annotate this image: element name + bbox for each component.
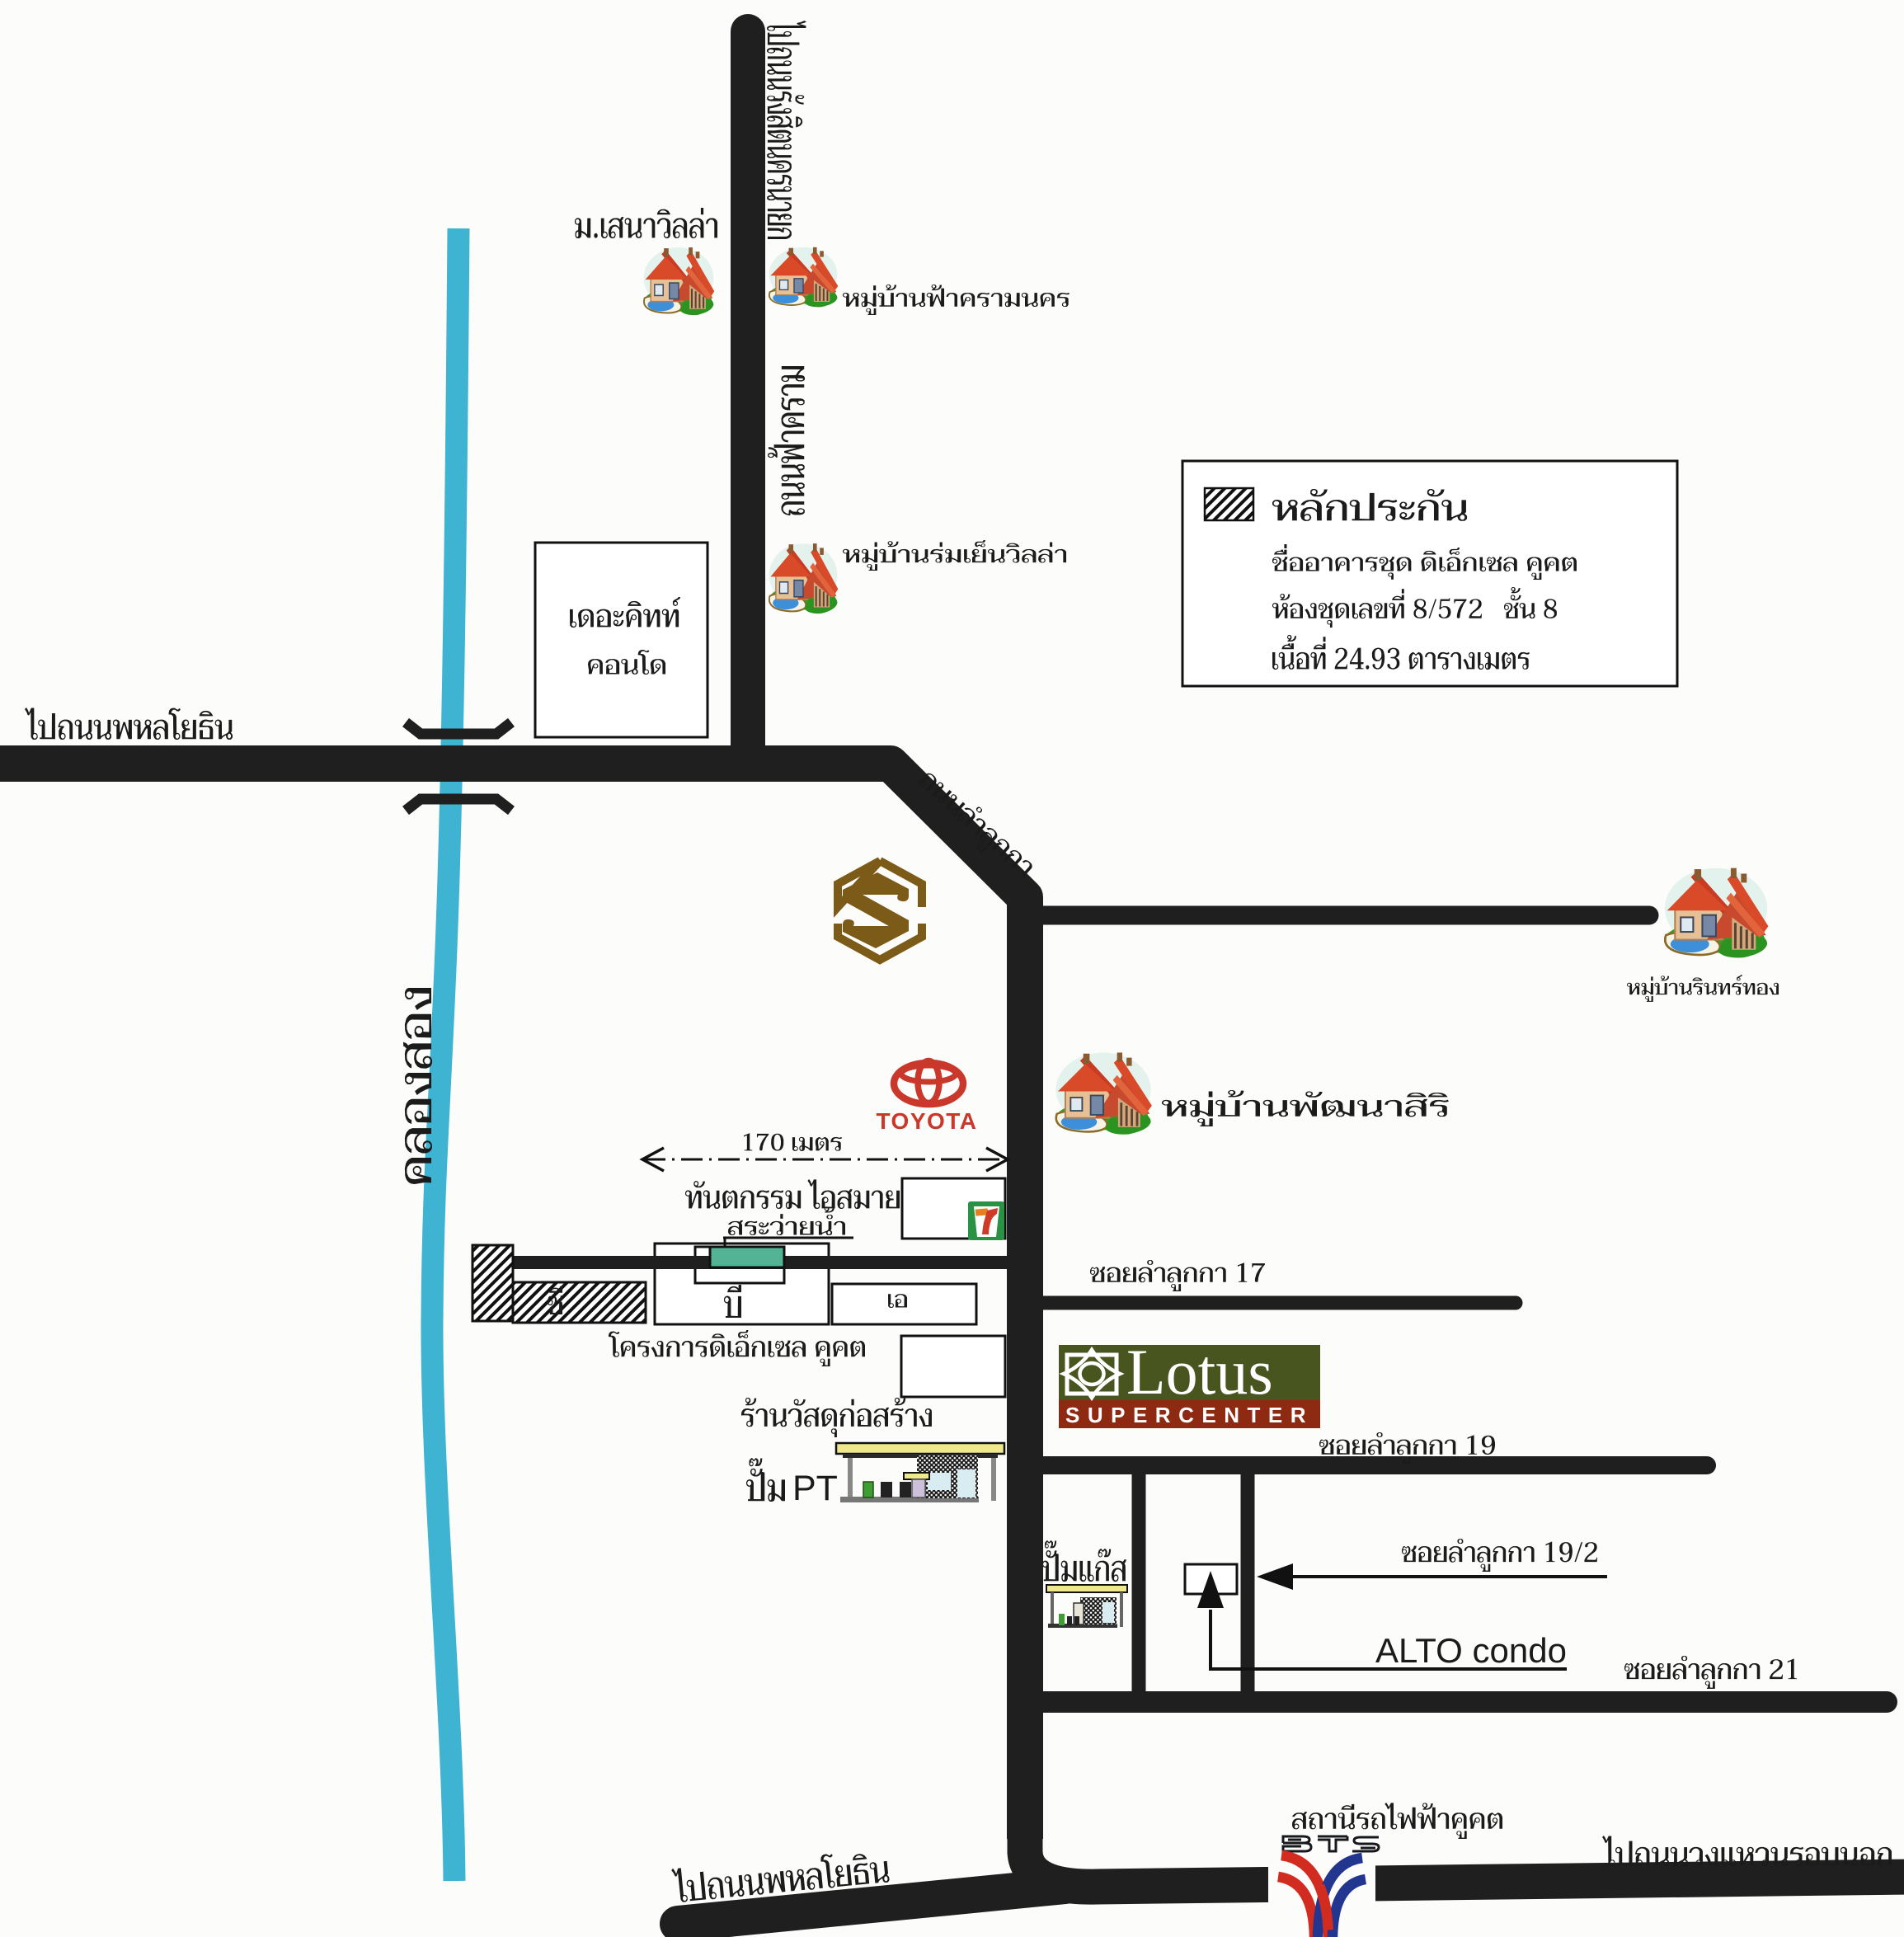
svg-text:TOYOTA: TOYOTA — [876, 1108, 977, 1134]
svg-text:PT: PT — [792, 1469, 838, 1508]
svg-text:Lotus: Lotus — [1126, 1336, 1273, 1408]
svg-text:SUPERCENTER: SUPERCENTER — [1065, 1403, 1314, 1427]
svg-text:ALTO condo: ALTO condo — [1375, 1631, 1567, 1670]
